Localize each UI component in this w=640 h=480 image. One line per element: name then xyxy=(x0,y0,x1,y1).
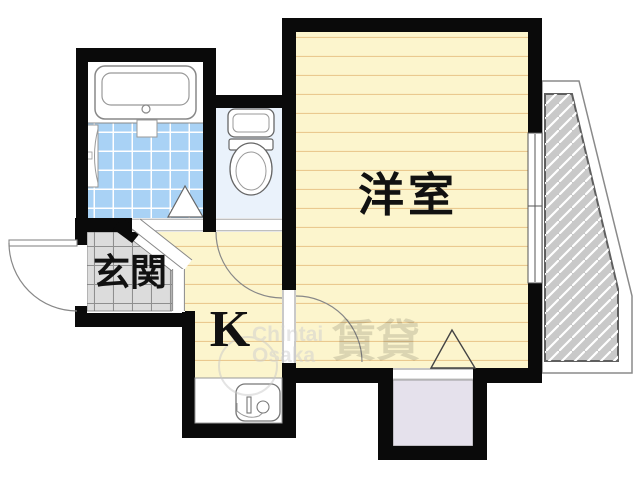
bath-panel xyxy=(87,125,98,187)
wall-kitchen-left xyxy=(182,311,195,438)
bathroom xyxy=(87,62,203,218)
entrance-doorway xyxy=(75,245,87,306)
kitchen-sink-icon xyxy=(236,384,280,421)
wall-genkan-left-bottom xyxy=(75,306,87,327)
wall-bath-top xyxy=(76,48,216,62)
wall-kitchen-bottom xyxy=(182,423,296,438)
floor-plan-image: Chintai Osaka 賃貸 洋室 玄関 K xyxy=(0,0,640,480)
window xyxy=(528,133,542,283)
wall-bath-toilet-divider xyxy=(203,48,216,232)
wall-west-left-upper xyxy=(282,18,296,290)
toilet-doorway xyxy=(216,218,282,232)
kitchen-label: K xyxy=(210,301,251,358)
wall-genkan-bottom xyxy=(75,313,192,327)
wall-west-right-upper xyxy=(528,18,542,133)
entrance-door xyxy=(9,240,77,311)
western-room-label: 洋室 xyxy=(358,170,458,221)
floor-plan: Chintai Osaka 賃貸 洋室 玄関 K xyxy=(0,0,640,480)
wall-closet-bottom xyxy=(378,446,487,460)
closet xyxy=(393,380,473,446)
toilet-icon xyxy=(228,109,274,195)
wall-west-top xyxy=(282,18,542,32)
bath-counter xyxy=(137,120,157,137)
toilet-room xyxy=(216,108,282,218)
entrance-door-arc xyxy=(9,243,77,311)
entrance-door-leaf xyxy=(9,240,77,246)
balcony xyxy=(542,81,632,373)
wall-bath-left xyxy=(76,48,88,232)
closet-doorway xyxy=(393,368,473,380)
entrance-label: 玄関 xyxy=(93,252,167,294)
watermark-brand-1: Chintai xyxy=(252,323,323,346)
closet-interior xyxy=(393,380,473,446)
watermark-brand-2: Osaka xyxy=(252,344,315,367)
watermark-stamp: 賃貸 xyxy=(331,317,420,366)
bathtub-icon xyxy=(95,66,196,119)
